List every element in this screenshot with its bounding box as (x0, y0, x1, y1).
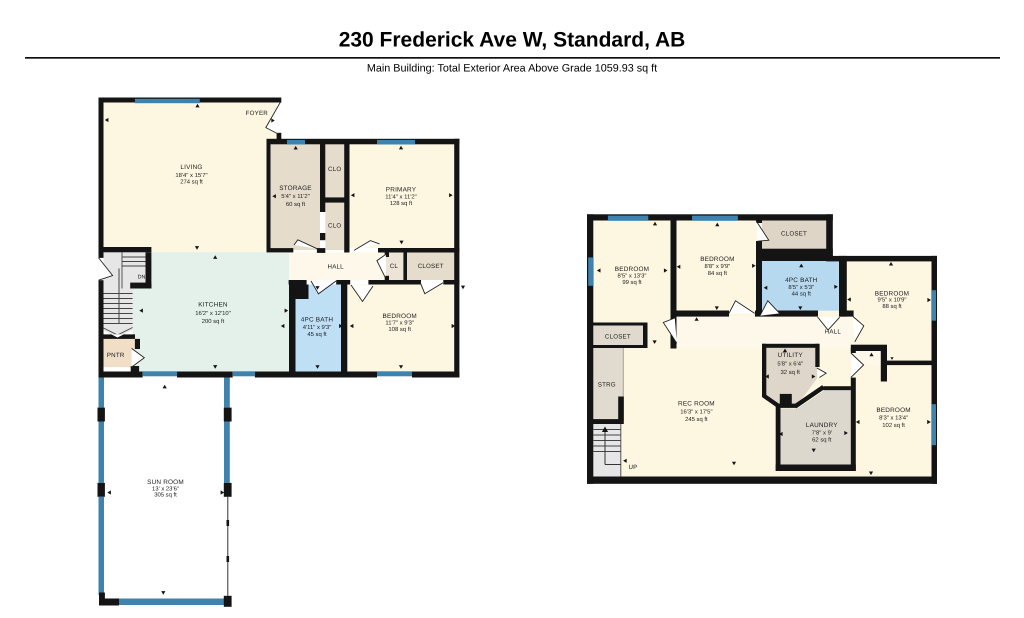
svg-text:88 sq ft: 88 sq ft (882, 303, 902, 310)
svg-text:STRG: STRG (598, 382, 616, 389)
svg-text:FOYER: FOYER (246, 110, 269, 117)
svg-text:CLO: CLO (328, 166, 341, 173)
svg-text:128 sq ft: 128 sq ft (390, 200, 413, 207)
svg-text:CL: CL (390, 263, 399, 270)
svg-text:60 sq ft: 60 sq ft (286, 201, 306, 208)
svg-text:8'3" x 13'4": 8'3" x 13'4" (879, 415, 908, 422)
svg-text:CLOSET: CLOSET (781, 231, 807, 238)
svg-text:8'5" x 13'3": 8'5" x 13'3" (617, 273, 646, 280)
svg-text:7'8" x 9': 7'8" x 9' (812, 430, 832, 437)
svg-text:REC ROOM: REC ROOM (678, 401, 715, 408)
svg-text:4'11" x 9'3": 4'11" x 9'3" (303, 324, 332, 331)
svg-text:16'3" x 17'5": 16'3" x 17'5" (680, 408, 712, 415)
svg-text:274 sq ft: 274 sq ft (180, 179, 203, 186)
svg-text:SUN ROOM: SUN ROOM (147, 479, 184, 486)
svg-text:305 sq ft: 305 sq ft (154, 492, 177, 499)
svg-text:62 sq ft: 62 sq ft (812, 436, 832, 443)
svg-text:108 sq ft: 108 sq ft (388, 326, 411, 333)
svg-text:BEDROOM: BEDROOM (382, 313, 416, 320)
svg-text:8'5" x 5'3": 8'5" x 5'3" (788, 284, 814, 291)
svg-text:44 sq ft: 44 sq ft (792, 290, 812, 297)
svg-text:HALL: HALL (825, 329, 842, 336)
svg-text:4PC BATH: 4PC BATH (785, 277, 818, 284)
svg-text:9'5" x 10'9": 9'5" x 10'9" (877, 296, 906, 303)
svg-text:245 sq ft: 245 sq ft (685, 416, 708, 423)
svg-text:18'4" x 15'7": 18'4" x 15'7" (175, 172, 207, 179)
svg-text:11'7" x 9'3": 11'7" x 9'3" (385, 319, 414, 326)
svg-text:LAUNDRY: LAUNDRY (806, 422, 838, 429)
svg-text:STORAGE: STORAGE (279, 185, 312, 192)
svg-text:13' x 23'6": 13' x 23'6" (152, 485, 179, 492)
svg-text:4PC BATH: 4PC BATH (301, 317, 334, 324)
svg-text:102 sq ft: 102 sq ft (882, 422, 905, 429)
svg-text:DN: DN (138, 274, 146, 280)
svg-text:Main Building: Total Exterior: Main Building: Total Exterior Area Above… (367, 63, 657, 75)
svg-text:BEDROOM: BEDROOM (876, 407, 910, 414)
svg-text:5'8" x 6'4": 5'8" x 6'4" (777, 361, 803, 368)
svg-text:CLO: CLO (328, 223, 341, 230)
svg-text:HALL: HALL (328, 264, 345, 271)
svg-text:84 sq ft: 84 sq ft (708, 270, 728, 277)
svg-text:PNTR: PNTR (107, 352, 125, 359)
svg-text:KITCHEN: KITCHEN (198, 301, 228, 308)
svg-text:CLOSET: CLOSET (418, 263, 444, 270)
svg-text:45 sq ft: 45 sq ft (307, 331, 327, 338)
svg-text:5'4" x 11'2": 5'4" x 11'2" (281, 193, 310, 200)
svg-text:230 Frederick Ave W, Standard,: 230 Frederick Ave W, Standard, AB (339, 29, 686, 52)
svg-text:BEDROOM: BEDROOM (700, 256, 734, 263)
svg-text:99 sq ft: 99 sq ft (622, 279, 642, 286)
svg-text:PRIMARY: PRIMARY (386, 187, 417, 194)
svg-text:UP: UP (629, 464, 638, 471)
svg-text:200 sq ft: 200 sq ft (202, 318, 225, 325)
svg-text:11'4" x 11'2": 11'4" x 11'2" (385, 193, 416, 200)
svg-text:CLOSET: CLOSET (605, 333, 631, 340)
svg-text:16'2" x 12'10": 16'2" x 12'10" (195, 310, 231, 317)
svg-text:8'8" x 9'9": 8'8" x 9'9" (705, 263, 731, 270)
svg-text:UTILITY: UTILITY (778, 352, 804, 359)
svg-text:32 sq ft: 32 sq ft (781, 369, 801, 376)
svg-text:BEDROOM: BEDROOM (615, 266, 649, 273)
svg-text:LIVING: LIVING (180, 164, 202, 171)
